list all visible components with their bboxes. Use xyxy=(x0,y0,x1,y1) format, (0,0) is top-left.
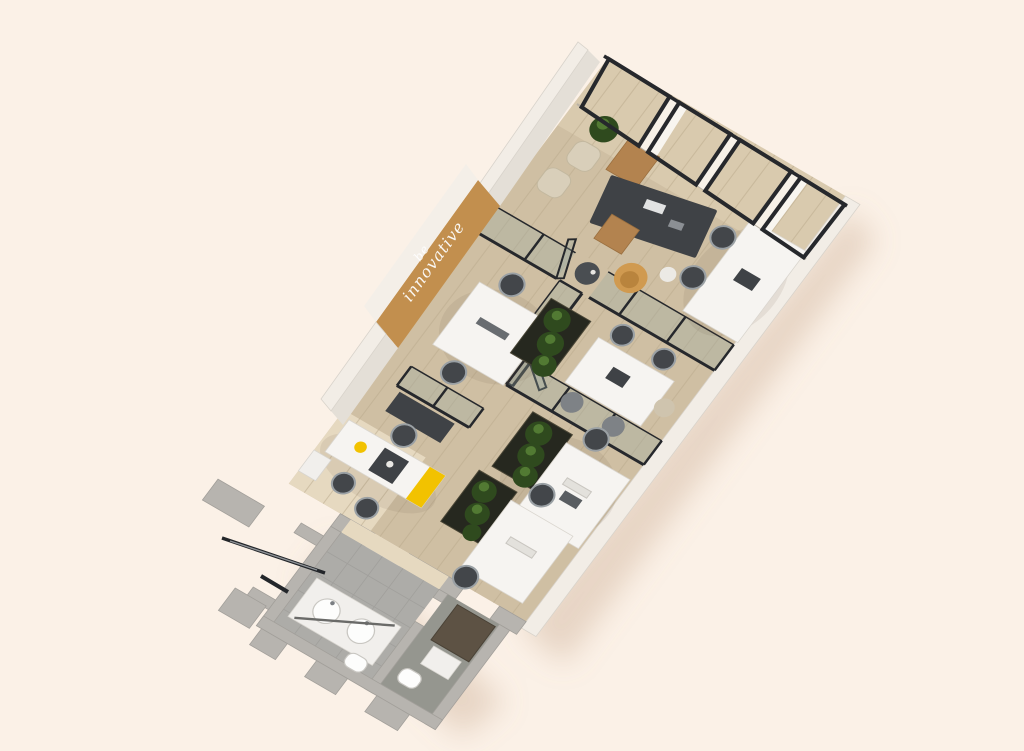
floor-plan-render: be innovative xyxy=(0,0,1024,751)
